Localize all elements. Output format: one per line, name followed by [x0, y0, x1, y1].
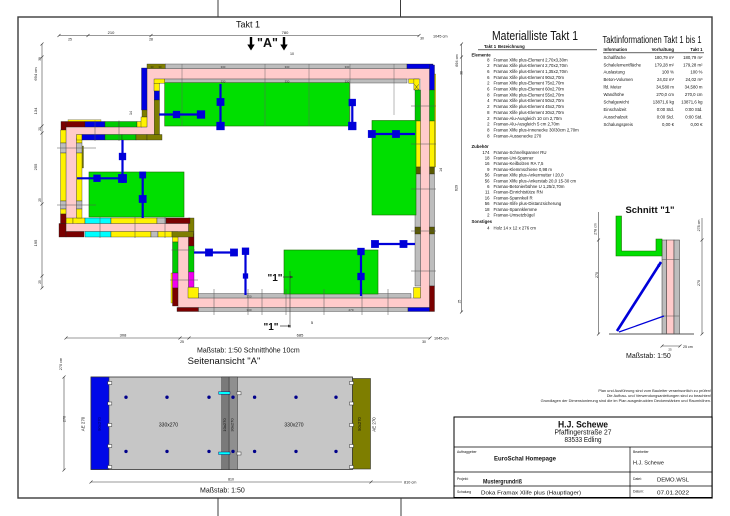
svg-text:810: 810: [228, 478, 234, 482]
svg-text:13871,6 kg: 13871,6 kg: [653, 100, 675, 105]
svg-text:Framax-Xlife plus-Distanzsiche: Framax-Xlife plus-Distanzsicherung: [494, 201, 562, 206]
svg-text:100 %: 100 %: [690, 70, 702, 75]
svg-text:685: 685: [297, 333, 304, 338]
svg-text:AE 270: AE 270: [372, 417, 377, 432]
svg-text:30: 30: [420, 37, 424, 41]
svg-text:Framax-Schnellspanner RU: Framax-Schnellspanner RU: [494, 150, 547, 155]
svg-text:Framax-Alu-Ausgleich 5 cm 2,70: Framax-Alu-Ausgleich 5 cm 2,70m: [494, 122, 560, 127]
svg-text:Doka Framax Xlife plus (Hauptl: Doka Framax Xlife plus (Hauptlager): [481, 491, 581, 497]
svg-text:EuroSchal Homepage: EuroSchal Homepage: [494, 456, 557, 463]
svg-text:14: 14: [129, 111, 133, 115]
svg-text:25: 25: [38, 280, 42, 284]
svg-text:Framax Xlife plus-Element 2,70: Framax Xlife plus-Element 2,70x3,30m: [494, 57, 568, 62]
svg-text:Takt 1: Takt 1: [236, 20, 260, 30]
svg-text:Framax-Umsetzbügel: Framax-Umsetzbügel: [494, 213, 535, 218]
svg-text:180,79 m²: 180,79 m²: [655, 55, 675, 60]
svg-text:180,79 m²: 180,79 m²: [683, 55, 703, 60]
svg-text:308: 308: [120, 333, 127, 338]
svg-text:Maßstab: 1:50: Maßstab: 1:50: [200, 488, 245, 495]
svg-text:Framax Xlife plus-Element 60x2: Framax Xlife plus-Element 60x2,70m: [494, 87, 565, 92]
svg-text:100 %: 100 %: [662, 70, 674, 75]
svg-text:"1": "1": [263, 322, 278, 333]
svg-text:Taktinformationen Takt 1 bis: Taktinformationen Takt 1 bis 1: [603, 35, 702, 46]
svg-text:38: 38: [460, 71, 464, 75]
svg-text:28: 28: [149, 37, 153, 41]
svg-text:Wandhöhe: Wandhöhe: [604, 92, 625, 97]
svg-text:174: 174: [482, 150, 490, 155]
svg-text:270: 270: [63, 416, 67, 422]
svg-text:25: 25: [180, 340, 184, 344]
svg-text:Takt 1: Takt 1: [690, 47, 703, 52]
svg-text:1045 cm: 1045 cm: [433, 35, 448, 39]
svg-text:330: 330: [345, 65, 350, 69]
svg-text:270,0 cm: 270,0 cm: [656, 92, 674, 97]
svg-text:270: 270: [595, 272, 599, 278]
svg-text:Seitenansicht "A": Seitenansicht "A": [188, 356, 261, 367]
svg-text:694 cm: 694 cm: [455, 54, 459, 66]
svg-text:Framax Xlife plus-Ankermutter: Framax Xlife plus-Ankermutter I 20,0: [494, 173, 565, 178]
svg-text:H.J. Schewe: H.J. Schewe: [633, 461, 664, 467]
svg-text:Maßstab: 1:50: Maßstab: 1:50: [626, 353, 671, 360]
svg-text:Holz 14 x 12 x 276 cm: Holz 14 x 12 x 276 cm: [494, 226, 537, 231]
svg-text:Framax-Spannkeil R: Framax-Spannkeil R: [494, 195, 533, 200]
svg-text:Framax Xlife plus-Element 50x2: Framax Xlife plus-Element 50x2,70m: [494, 98, 565, 103]
svg-text:Zubehör: Zubehör: [472, 144, 490, 149]
svg-text:1045 cm: 1045 cm: [434, 337, 449, 341]
svg-text:25: 25: [458, 300, 462, 304]
svg-text:Framax Xlife plus-Element 75x2: Framax Xlife plus-Element 75x2,70m: [494, 81, 565, 86]
svg-text:278 cm: 278 cm: [594, 223, 598, 235]
svg-text:Framax Xlife plus-Ankerstab 20: Framax Xlife plus-Ankerstab 20,0 15-30 c…: [494, 178, 577, 183]
svg-text:255: 255: [33, 163, 38, 170]
svg-text:Schalgewicht: Schalgewicht: [604, 100, 630, 105]
svg-text:Grundlagen der Dimensionierung: Grundlagen der Dimensionierung sind die …: [541, 398, 711, 403]
svg-text:0:00 Std.: 0:00 Std.: [657, 107, 674, 112]
svg-text:25: 25: [38, 198, 42, 202]
svg-text:270 cm: 270 cm: [59, 358, 63, 370]
svg-text:694 cm: 694 cm: [33, 67, 38, 81]
svg-text:25 cm: 25 cm: [683, 345, 693, 349]
svg-text:Framax-Klemmschiene 0,98 m: Framax-Klemmschiene 0,98 m: [494, 167, 553, 172]
svg-text:DEMO.WSL: DEMO.WSL: [657, 478, 689, 484]
svg-text:24,02 m³: 24,02 m³: [657, 77, 675, 82]
svg-text:Framax-Aussenecke 270: Framax-Aussenecke 270: [494, 133, 542, 138]
svg-text:56: 56: [485, 201, 490, 206]
svg-text:Sonstiges: Sonstiges: [472, 219, 493, 224]
svg-text:AE 270: AE 270: [81, 416, 86, 431]
svg-text:Bezeichnung: Bezeichnung: [498, 44, 525, 49]
svg-text:Framax-Betonierbühne U 1,25/2,: Framax-Betonierbühne U 1,25/2,70m: [494, 184, 565, 189]
svg-text:134: 134: [33, 107, 38, 114]
svg-text:"A": "A": [257, 36, 278, 50]
svg-text:279: 279: [348, 308, 353, 312]
svg-text:Framax Xlife plus-Element 1,35: Framax Xlife plus-Element 1,35x2,70m: [494, 69, 568, 74]
svg-text:38: 38: [38, 57, 42, 61]
svg-text:Framax Xlife plus-Innenecke 30: Framax Xlife plus-Innenecke 30/30cm 2,70…: [494, 128, 580, 133]
svg-text:56: 56: [485, 178, 490, 183]
svg-text:18: 18: [485, 156, 490, 161]
svg-text:"1": "1": [267, 273, 282, 284]
svg-text:Framax-Spannklemme: Framax-Spannklemme: [494, 207, 538, 212]
svg-text:24,02 m³: 24,02 m³: [686, 77, 704, 82]
svg-text:Beton-Volumen: Beton-Volumen: [604, 77, 634, 82]
svg-text:Framax-Alu-Ausgleich 10 cm 2,7: Framax-Alu-Ausgleich 10 cm 2,70m: [494, 116, 563, 121]
svg-text:Datum:: Datum:: [633, 490, 644, 494]
svg-text:30x270: 30x270: [230, 418, 235, 432]
svg-text:13871,6 kg: 13871,6 kg: [681, 100, 703, 105]
svg-text:0:00 Std.: 0:00 Std.: [657, 115, 674, 120]
svg-text:210: 210: [108, 30, 115, 35]
svg-text:0,00 €: 0,00 €: [662, 122, 675, 127]
svg-text:0:00 Std.: 0:00 Std.: [685, 115, 702, 120]
svg-text:Vorhaltung: Vorhaltung: [652, 47, 675, 52]
svg-text:270,0 cm: 270,0 cm: [685, 92, 703, 97]
svg-text:34,580 m: 34,580 m: [656, 85, 674, 90]
svg-text:Auslastung: Auslastung: [604, 70, 626, 75]
svg-text:14: 14: [439, 168, 443, 172]
svg-text:07.01.2022: 07.01.2022: [657, 491, 689, 497]
svg-text:Schalungspreis: Schalungspreis: [604, 122, 633, 127]
svg-text:34,580 m: 34,580 m: [685, 85, 703, 90]
svg-text:Framax Xlife plus-Element 90x2: Framax Xlife plus-Element 90x2,70m: [494, 75, 565, 80]
svg-text:90x270: 90x270: [97, 416, 102, 430]
svg-text:Schnitt "1": Schnitt "1": [625, 205, 674, 216]
svg-text:30: 30: [422, 340, 426, 344]
svg-text:Schalelementfläche: Schalelementfläche: [604, 62, 642, 67]
svg-text:56: 56: [485, 173, 490, 178]
svg-text:10x270: 10x270: [222, 418, 227, 432]
svg-text:0:00 Std.: 0:00 Std.: [685, 107, 702, 112]
svg-text:278 cm: 278 cm: [697, 220, 701, 232]
svg-text:330: 330: [221, 65, 226, 69]
svg-text:Framax Xlife plus-Element 45x2: Framax Xlife plus-Element 45x2,70m: [494, 104, 565, 109]
svg-text:629: 629: [455, 185, 459, 191]
svg-text:Framax Xlife plus-Element 55x2: Framax Xlife plus-Element 55x2,70m: [494, 92, 565, 97]
svg-text:Schalung: Schalung: [457, 490, 471, 494]
svg-text:Schalfläche: Schalfläche: [604, 55, 627, 60]
svg-text:Bearbeiter: Bearbeiter: [633, 450, 650, 454]
svg-text:Einschalzeit: Einschalzeit: [604, 107, 628, 112]
svg-text:20: 20: [38, 127, 42, 131]
svg-text:330x270: 330x270: [159, 423, 178, 429]
svg-text:50x270: 50x270: [357, 416, 362, 430]
svg-text:10: 10: [290, 52, 294, 56]
svg-text:16: 16: [485, 161, 490, 166]
svg-text:11: 11: [485, 190, 490, 195]
svg-text:Auftraggeber: Auftraggeber: [457, 450, 477, 454]
svg-text:330: 330: [285, 65, 290, 69]
svg-text:330: 330: [246, 294, 251, 298]
svg-text:270: 270: [697, 280, 701, 286]
svg-text:Maßstab: 1:50 Schnitthöhe: Maßstab: 1:50 Schnitthöhe 10cm: [197, 348, 300, 355]
svg-text:179,28 m²: 179,28 m²: [655, 62, 675, 67]
svg-text:Information: Information: [604, 47, 628, 52]
svg-text:83533 Edling: 83533 Edling: [565, 435, 602, 444]
svg-text:16: 16: [485, 195, 490, 200]
svg-text:0,00 €: 0,00 €: [691, 122, 704, 127]
svg-text:Projekt:: Projekt:: [457, 477, 469, 481]
svg-text:Framax Xlife plus-Element 30x2: Framax Xlife plus-Element 30x2,70m: [494, 110, 565, 115]
svg-text:lfd. Meter: lfd. Meter: [604, 85, 622, 90]
svg-text:810 cm: 810 cm: [404, 481, 416, 485]
svg-text:Takt 1: Takt 1: [484, 44, 497, 49]
svg-text:Datei:: Datei:: [633, 477, 642, 481]
svg-text:Framax Xlife plus-Element 2,70: Framax Xlife plus-Element 2,70x2,70m: [494, 63, 568, 68]
svg-text:195: 195: [33, 239, 38, 246]
svg-text:Ausschalzeit: Ausschalzeit: [604, 115, 629, 120]
svg-text:25: 25: [68, 37, 72, 41]
svg-text:780: 780: [282, 30, 289, 35]
svg-text:Materialliste Takt 1: Materialliste Takt 1: [492, 29, 578, 43]
svg-text:25: 25: [668, 348, 672, 352]
svg-text:Mustergrundriß: Mustergrundriß: [483, 478, 522, 485]
svg-text:Framax-Uni-Spanner: Framax-Uni-Spanner: [494, 156, 535, 161]
svg-text:18: 18: [485, 207, 490, 212]
svg-text:330x270: 330x270: [284, 423, 303, 429]
svg-text:179,28 m²: 179,28 m²: [683, 62, 703, 67]
svg-text:Framax-Einrichtstütze RN: Framax-Einrichtstütze RN: [494, 190, 543, 195]
svg-text:330: 330: [246, 308, 251, 312]
svg-text:Framax-Keilbolzen RA 7,5: Framax-Keilbolzen RA 7,5: [494, 161, 545, 166]
